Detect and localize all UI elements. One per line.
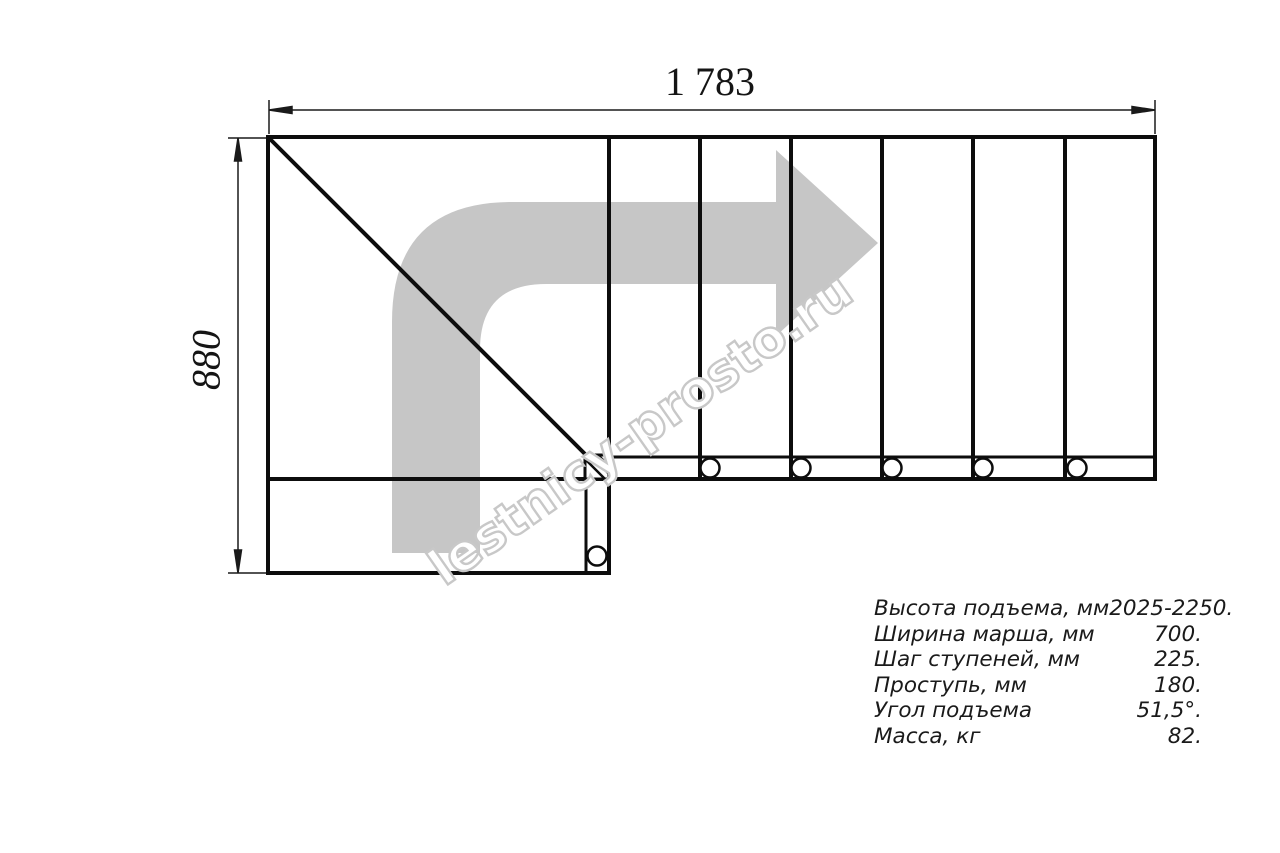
spec-row-angle: Угол подъема 51,5°. bbox=[874, 698, 1202, 724]
spec-value: 700. bbox=[1154, 622, 1202, 648]
spec-value: 2025-2250. bbox=[1109, 596, 1233, 622]
dim-arrowhead-up-icon bbox=[235, 138, 242, 161]
left-dimension bbox=[228, 138, 266, 573]
spec-label: Ширина марша, мм bbox=[874, 622, 1095, 648]
spec-label: Масса, кг bbox=[874, 724, 981, 750]
stair-drawing-page: lestnicy-prosto.ru 1 783 880 Высота подъ… bbox=[0, 0, 1280, 853]
spec-value: 180. bbox=[1154, 673, 1202, 699]
dim-arrowhead-right-icon bbox=[1132, 107, 1155, 114]
bolt-hole bbox=[701, 459, 720, 478]
spec-row-mass: Масса, кг 82. bbox=[874, 724, 1202, 750]
bolt-hole bbox=[1068, 459, 1087, 478]
specs-table: Высота подъема, мм 2025-2250. Ширина мар… bbox=[874, 596, 1202, 749]
spec-value: 82. bbox=[1168, 724, 1202, 750]
spec-row-step-pitch: Шаг ступеней, мм 225. bbox=[874, 647, 1202, 673]
spec-value: 51,5°. bbox=[1137, 698, 1202, 724]
bolt-holes bbox=[588, 459, 1087, 566]
width-dimension-label: 1 783 bbox=[665, 58, 755, 105]
spec-label: Шаг ступеней, мм bbox=[874, 647, 1080, 673]
spec-value: 225. bbox=[1154, 647, 1202, 673]
spec-label: Угол подъема bbox=[874, 698, 1032, 724]
dim-arrowhead-left-icon bbox=[269, 107, 292, 114]
spec-label: Высота подъема, мм bbox=[874, 596, 1109, 622]
spec-row-height: Высота подъема, мм 2025-2250. bbox=[874, 596, 1202, 622]
bolt-hole bbox=[883, 459, 902, 478]
bolt-hole bbox=[588, 547, 607, 566]
spec-row-tread: Проступь, мм 180. bbox=[874, 673, 1202, 699]
spec-row-flight-width: Ширина марша, мм 700. bbox=[874, 622, 1202, 648]
height-dimension-label: 880 bbox=[183, 330, 230, 390]
bolt-hole bbox=[974, 459, 993, 478]
spec-label: Проступь, мм bbox=[874, 673, 1027, 699]
dim-arrowhead-down-icon bbox=[235, 550, 242, 573]
top-dimension bbox=[269, 100, 1155, 134]
direction-arrow-icon bbox=[392, 150, 878, 553]
bolt-hole bbox=[792, 459, 811, 478]
